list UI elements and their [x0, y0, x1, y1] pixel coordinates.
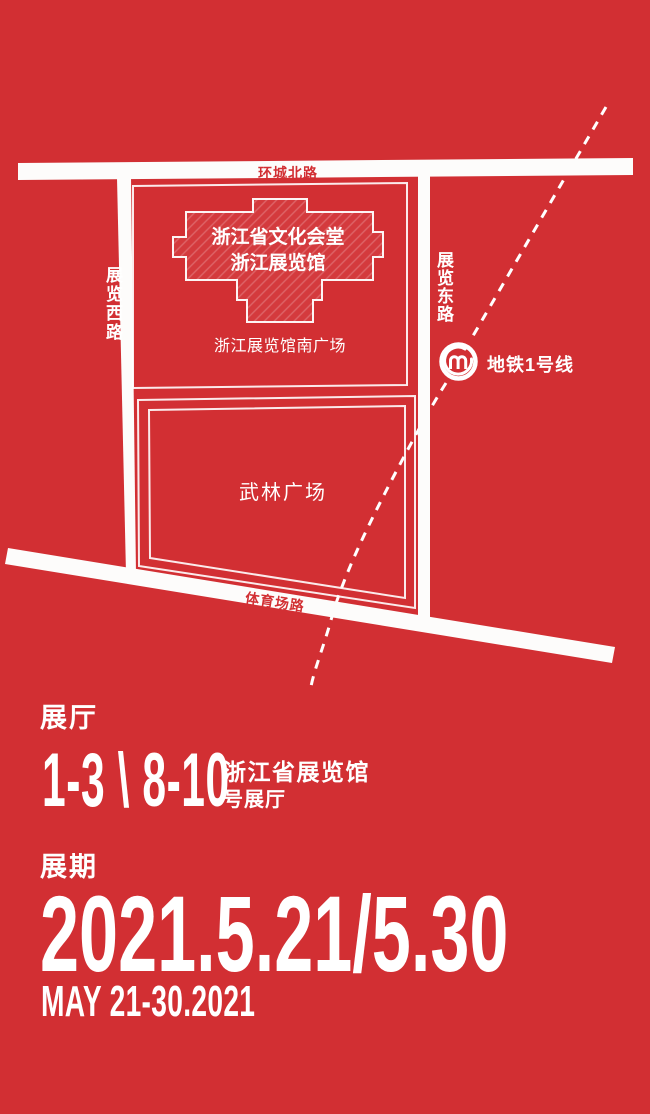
exhibition-poster: 环城北路 展览西路 展览东路 体育场路 浙江省文化会堂 浙江展览馆 浙江展览馆南… [0, 0, 650, 1114]
exhibition-dates: 2021.5.21/5.30 [40, 880, 508, 988]
building-label-line2: 浙江展览馆 [178, 251, 378, 277]
building-label: 浙江省文化会堂 浙江展览馆 [178, 225, 378, 277]
exhibition-dates-english: MAY 21-30.2021 [41, 980, 255, 1024]
metro-logo-icon [442, 345, 476, 379]
road-label-west: 展览西路 [100, 266, 125, 342]
venue-hall-suffix: 号展厅 [223, 783, 286, 812]
building-label-line1: 浙江省文化会堂 [178, 225, 378, 251]
hall-numbers: 1-3 \ 8-10 [42, 743, 230, 819]
road-label-north: 环城北路 [233, 163, 343, 183]
south-square-label: 浙江展览馆南广场 [178, 332, 382, 356]
metro-line-dashed-upper [470, 107, 606, 341]
road-east [418, 175, 430, 623]
road-label-east: 展览东路 [431, 251, 456, 323]
wulin-square-label: 武林广场 [200, 476, 366, 505]
venue-name: 浙江省展览馆 [223, 753, 370, 787]
hall-heading: 展厅 [40, 696, 98, 735]
metro-line-label: 地铁1号线 [487, 351, 574, 377]
